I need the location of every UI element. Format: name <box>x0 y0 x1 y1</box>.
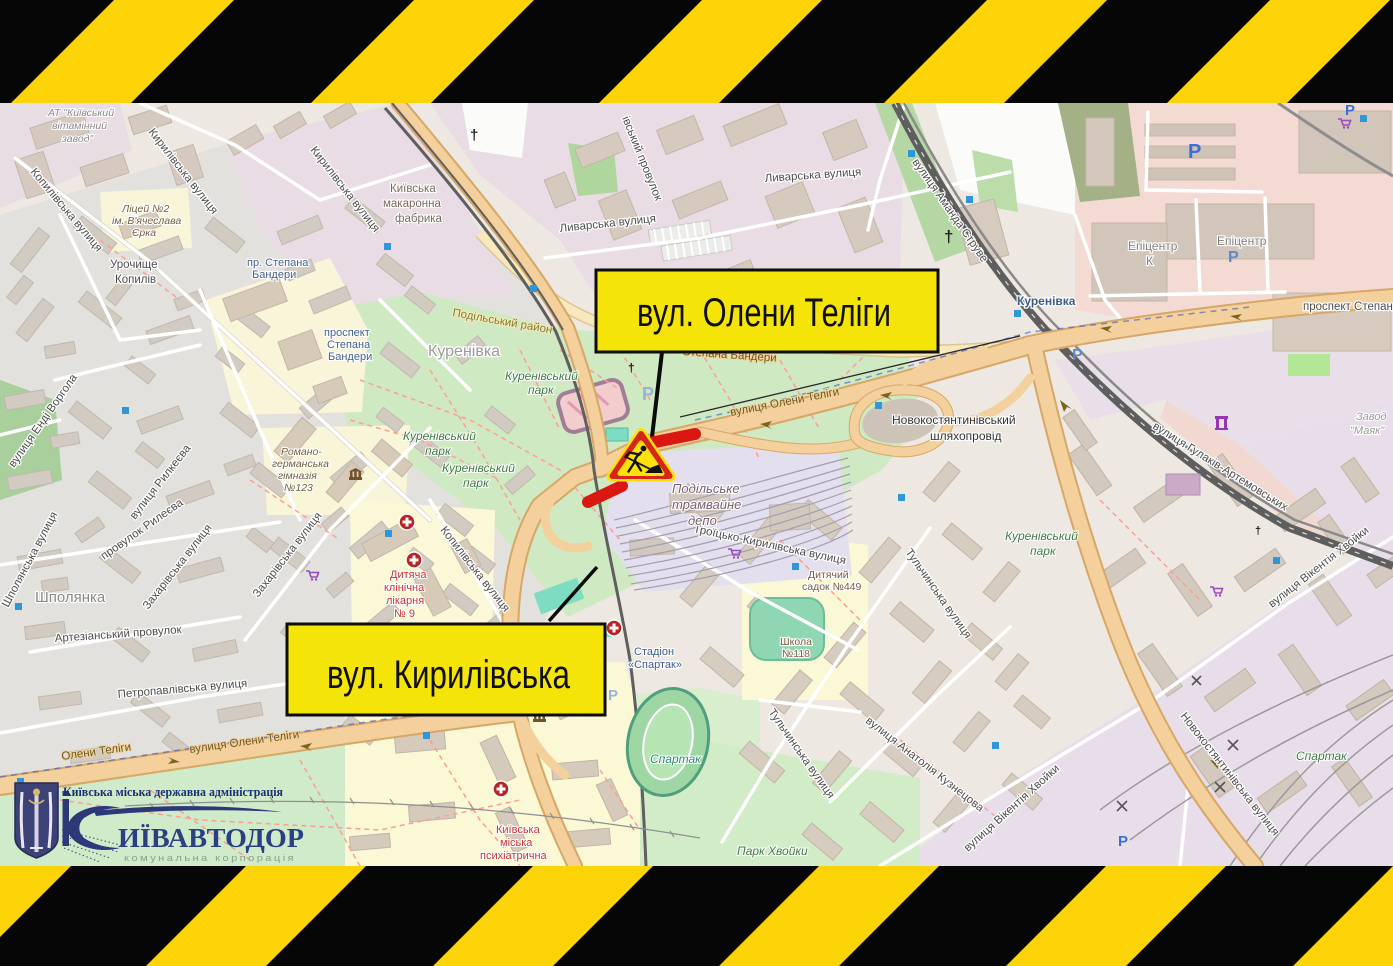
svg-text:завод": завод" <box>61 133 94 145</box>
svg-text:Куренівський: Куренівський <box>1005 529 1078 543</box>
svg-text:P: P <box>1072 347 1083 364</box>
svg-text:шляхопровід: шляхопровід <box>930 429 1002 443</box>
svg-text:†: † <box>1255 525 1261 537</box>
svg-text:вул. Кирилівська: вул. Кирилівська <box>327 653 571 697</box>
svg-text:Епіцентр: Епіцентр <box>1128 239 1178 253</box>
svg-text:№ 9: № 9 <box>394 608 415 620</box>
svg-text:Куренівка: Куренівка <box>1017 294 1076 308</box>
svg-text:Бандери: Бандери <box>328 351 372 363</box>
svg-text:Подільське: Подільське <box>672 481 740 496</box>
svg-text:ИЇВАВТОДОР: ИЇВАВТОДОР <box>118 823 304 853</box>
svg-text:Київська: Київська <box>390 183 436 195</box>
svg-text:†: † <box>944 227 953 246</box>
svg-text:№118: №118 <box>782 648 810 660</box>
svg-text:Школа: Школа <box>780 636 812 648</box>
svg-text:макаронна: макаронна <box>383 198 441 210</box>
svg-text:Стадіон: Стадіон <box>634 646 674 658</box>
svg-text:†: † <box>628 361 635 375</box>
svg-text:P: P <box>608 687 618 704</box>
svg-text:Романо-: Романо- <box>281 446 322 458</box>
svg-text:трамвайне: трамвайне <box>672 497 741 512</box>
svg-text:парк: парк <box>463 476 490 490</box>
svg-text:садок №449: садок №449 <box>802 581 862 593</box>
svg-text:Урочище: Урочище <box>110 259 157 271</box>
svg-text:пр. Степана: пр. Степана <box>247 257 309 269</box>
svg-text:Дитяча: Дитяча <box>390 569 427 581</box>
svg-text:міська: міська <box>500 837 533 849</box>
svg-text:Спартак: Спартак <box>1296 749 1348 763</box>
svg-text:Бандери: Бандери <box>252 269 296 281</box>
svg-text:Шполянка: Шполянка <box>35 589 106 606</box>
svg-text:Куренівський: Куренівський <box>403 429 476 443</box>
svg-text:Дитячий: Дитячий <box>808 569 849 581</box>
svg-text:Завод: Завод <box>1356 411 1387 423</box>
svg-text:"Маяк": "Маяк" <box>1350 425 1385 437</box>
svg-text:P: P <box>1188 141 1201 163</box>
svg-text:ім. В'ячеслава: ім. В'ячеслава <box>112 215 181 227</box>
svg-text:«Спартак»: «Спартак» <box>628 659 682 671</box>
svg-text:психіатрична: психіатрична <box>480 850 548 862</box>
svg-text:лікарня: лікарня <box>386 595 424 607</box>
svg-text:парк: парк <box>425 444 452 458</box>
svg-text:Київська: Київська <box>496 824 541 836</box>
svg-text:Епіцентр: Епіцентр <box>1217 234 1267 248</box>
svg-text:P: P <box>1118 833 1128 850</box>
svg-text:вітамінний: вітамінний <box>52 120 107 132</box>
svg-text:Єрка: Єрка <box>132 227 156 239</box>
svg-text:P: P <box>1228 249 1239 266</box>
svg-text:Куренівський: Куренівський <box>505 369 578 383</box>
svg-text:клінічна: клінічна <box>384 582 425 594</box>
svg-text:германська: германська <box>272 458 329 470</box>
svg-text:парк: парк <box>528 383 555 397</box>
svg-text:№123: №123 <box>284 482 313 494</box>
svg-text:комунальна корпорація: комунальна корпорація <box>124 853 296 864</box>
svg-text:гімназія: гімназія <box>278 470 317 482</box>
svg-text:К: К <box>1146 254 1153 268</box>
svg-text:Спартак: Спартак <box>650 752 702 766</box>
svg-text:P: P <box>1345 102 1355 119</box>
svg-text:P: P <box>642 384 654 404</box>
svg-text:Куренівка: Куренівка <box>428 343 500 360</box>
svg-text:†: † <box>470 127 478 144</box>
svg-text:Копилів: Копилів <box>115 274 156 286</box>
svg-text:АТ "Київський: АТ "Київський <box>47 107 114 119</box>
svg-text:фабрика: фабрика <box>395 213 443 225</box>
svg-text:Новокостянтинівський: Новокостянтинівський <box>892 413 1016 427</box>
svg-text:Степана: Степана <box>327 339 371 351</box>
svg-text:проспект Степана: проспект Степана <box>1303 301 1393 313</box>
svg-text:Куренівський: Куренівський <box>442 461 515 475</box>
svg-text:депо: депо <box>688 513 717 528</box>
svg-text:Ліцей №2: Ліцей №2 <box>121 203 170 215</box>
svg-text:парк: парк <box>1030 544 1057 558</box>
svg-text:Парк Хвойки: Парк Хвойки <box>737 844 808 858</box>
svg-text:вул. Олени Теліги: вул. Олени Теліги <box>637 291 891 335</box>
svg-text:проспект: проспект <box>324 327 370 339</box>
svg-text:Київська міська державна ад: Київська міська державна адміністрація <box>63 785 283 799</box>
